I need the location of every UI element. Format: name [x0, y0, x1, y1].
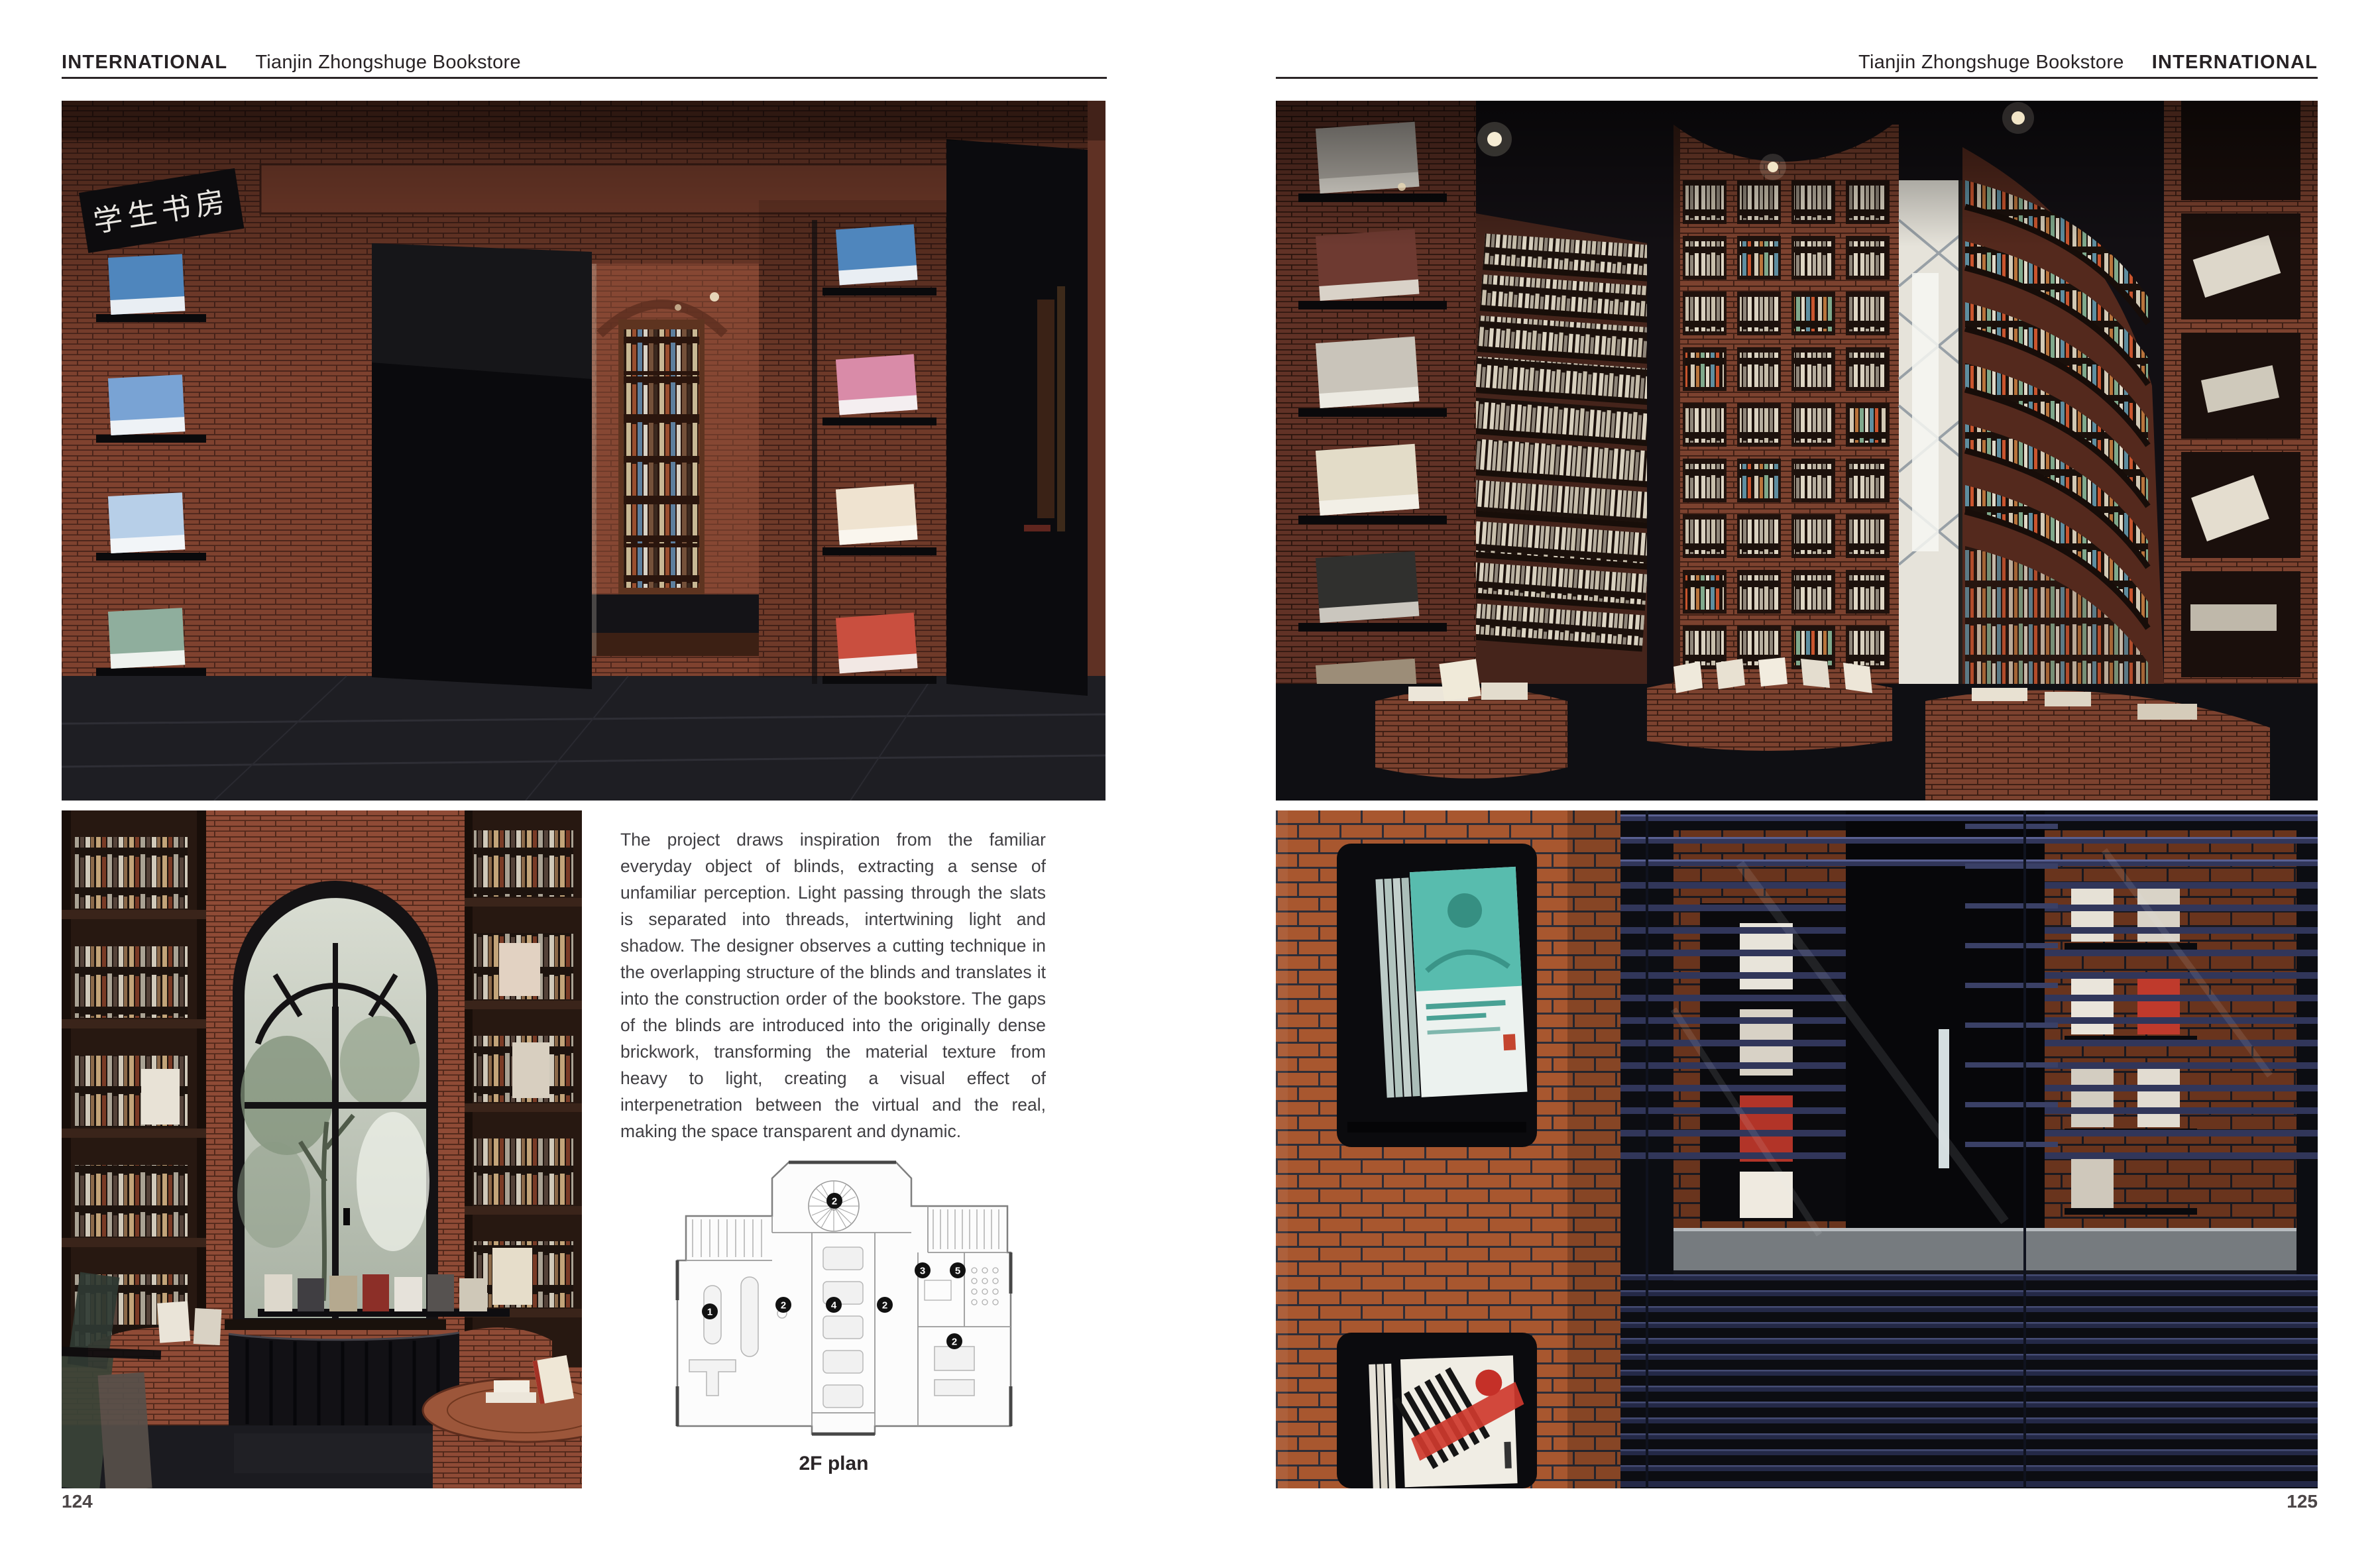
svg-text:2: 2	[832, 1196, 837, 1207]
page-number-right: 125	[1276, 1491, 2318, 1512]
body-paragraph: The project draws inspiration from the f…	[620, 826, 1046, 1144]
display-panel-top	[1337, 844, 1537, 1147]
svg-text:2: 2	[952, 1337, 957, 1348]
right-header-section: INTERNATIONAL	[2152, 52, 2318, 73]
right-header-rule	[1276, 77, 2318, 79]
window-slit	[1899, 180, 1962, 684]
svg-text:3: 3	[920, 1266, 925, 1277]
photo-left-top-brick-portals: 学生书房	[62, 101, 1105, 801]
svg-text:1: 1	[707, 1307, 712, 1318]
svg-text:4: 4	[831, 1300, 837, 1311]
photo-right-top-bookshelf-hall	[1276, 101, 2318, 801]
left-header-rule	[62, 77, 1107, 79]
photo-right-bottom-blinds	[1276, 810, 2318, 1488]
corridor-view	[592, 264, 759, 656]
left-page-header: INTERNATIONALTianjin Zhongshuge Bookstor…	[62, 52, 521, 74]
right-header-title: Tianjin Zhongshuge Bookstore	[1858, 52, 2124, 73]
book-spread: { "left_page": { "header": { "section": …	[0, 0, 2380, 1550]
page-number-left: 124	[62, 1491, 93, 1512]
photo-left-bottom-arched-window	[62, 810, 582, 1488]
arched-window	[225, 881, 446, 1330]
floor-plan-2f: 21242352	[663, 1148, 1067, 1449]
svg-text:2: 2	[882, 1300, 887, 1311]
svg-text:5: 5	[955, 1266, 960, 1277]
receding-shelf-wall	[1457, 213, 1670, 684]
display-panel-bottom	[1337, 1333, 1537, 1488]
svg-text:2: 2	[781, 1300, 786, 1311]
left-header-section: INTERNATIONAL	[62, 52, 227, 73]
left-header-title: Tianjin Zhongshuge Bookstore	[255, 52, 521, 73]
plan-caption: 2F plan	[632, 1453, 1036, 1475]
right-page-header: Tianjin Zhongshuge BookstoreINTERNATIONA…	[1276, 52, 2318, 74]
